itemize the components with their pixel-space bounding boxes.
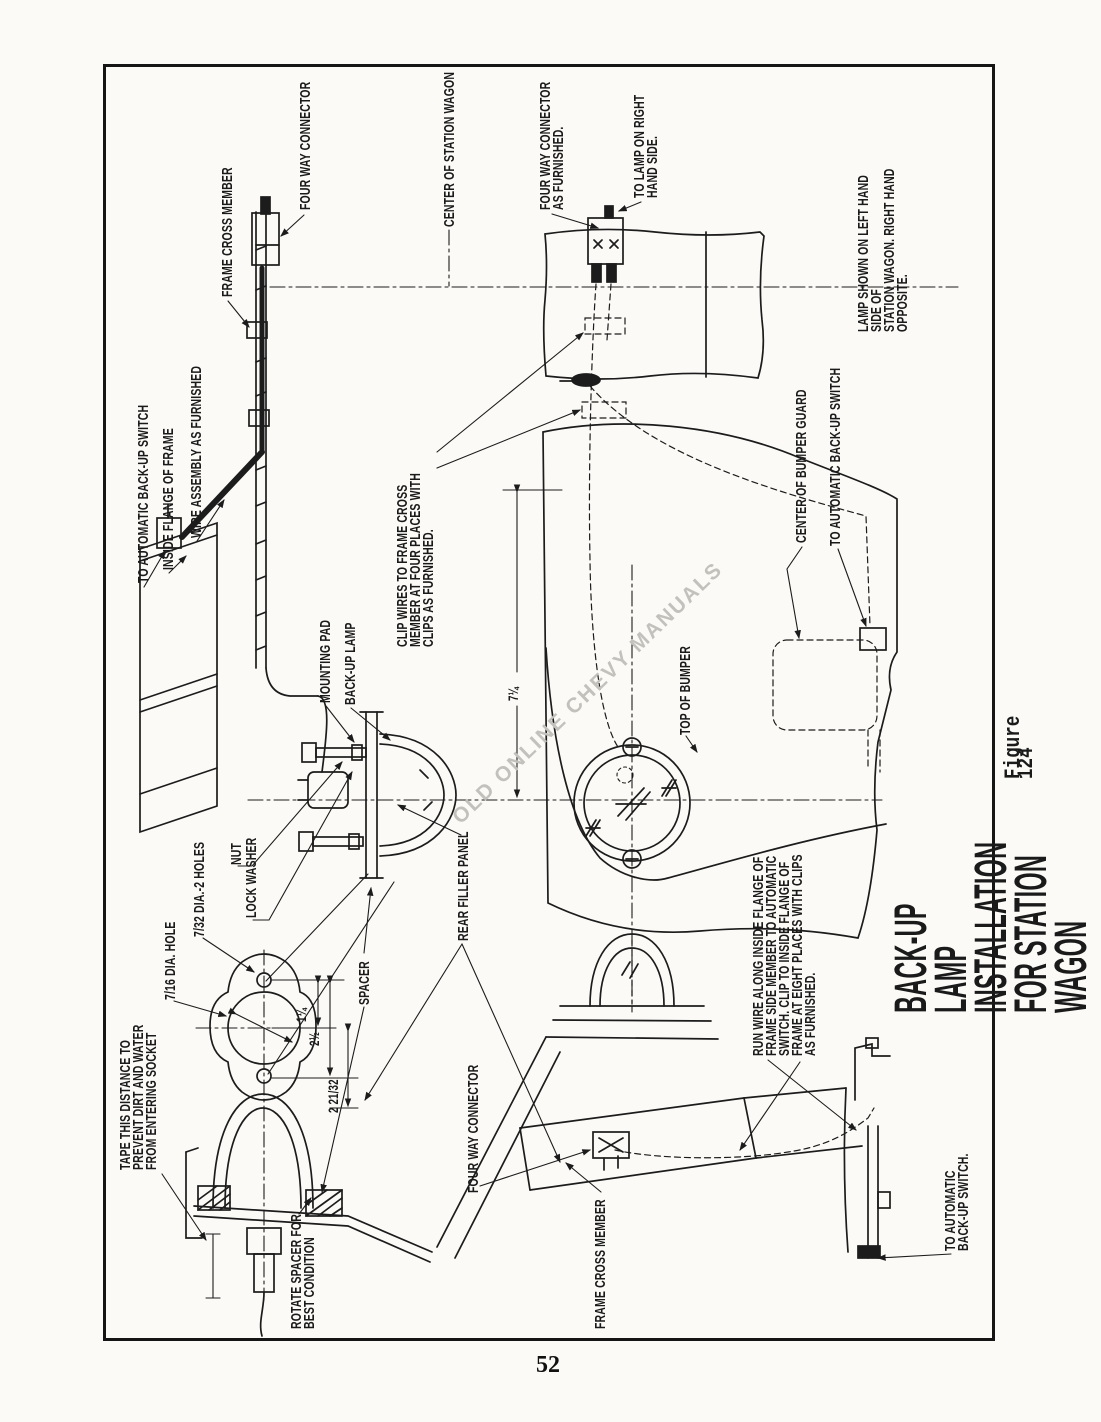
label-dia-2-holes: 7/32 DIA.-2 HOLES — [193, 842, 206, 937]
label-to-lamp-on-right: TO LAMP ON RIGHT HAND SIDE. — [633, 95, 659, 198]
label-center-of-station-wagon: CENTER OF STATION WAGON — [443, 72, 456, 227]
label-rear-filler-panel: REAR FILLER PANEL — [457, 831, 470, 941]
label-nut: NUT — [230, 843, 243, 865]
label-center-of-bumper-guard: CENTER OF BUMPER GUARD — [795, 389, 808, 543]
label-four-way-connector-as-furnished: FOUR WAY CONNECTOR AS FURNISHED. — [539, 82, 565, 210]
dimension-7-1-4: 7¼ — [507, 687, 520, 701]
label-lock-washer: LOCK WASHER — [245, 838, 258, 918]
label-clip-wires-note: CLIP WIRES TO FRAME CROSS MEMBER AT FOUR… — [396, 473, 435, 647]
page-number: 52 — [536, 1352, 560, 1379]
frame-plan-view — [437, 934, 890, 1258]
label-dia-hole: 7/16 DIA. HOLE — [164, 922, 177, 1000]
label-back-up-lamp: BACK-UP LAMP — [344, 622, 357, 705]
dimension-1-1-4: 1¼ — [295, 1008, 308, 1022]
label-mounting-pad: MOUNTING PAD — [319, 620, 332, 703]
label-inside-flange-of-frame: INSIDE FLANGE OF FRAME — [162, 428, 175, 570]
dimension-2-1-2: 2½ — [308, 1032, 321, 1046]
label-spacer: SPACER — [358, 961, 371, 1005]
figure-caption: Figure 124 — [1007, 704, 1033, 779]
label-four-way-connector-bottom: FOUR WAY CONNECTOR — [467, 1065, 480, 1193]
dimension-2-21-32: 2 21/32 — [327, 1079, 340, 1113]
manual-page: FOUR WAY CONNECTOR FRAME CROSS MEMBER CE… — [0, 0, 1101, 1422]
label-to-automatic-backup-switch-mid: TO AUTOMATIC BACK-UP SWITCH — [829, 368, 842, 546]
label-to-automatic-backup-switch-bottom: TO AUTOMATIC BACK-UP SWITCH. — [944, 1141, 970, 1251]
figure-title: BACK-UP LAMP INSTALLATION FOR STATION WA… — [891, 842, 1091, 1013]
label-frame-cross-member-bottom: FRAME CROSS MEMBER — [594, 1199, 607, 1329]
label-frame-cross-member-top: FRAME CROSS MEMBER — [221, 167, 234, 297]
diagram-line-art — [0, 0, 1101, 1422]
label-rotate-spacer: ROTATE SPACER FOR BEST CONDITION — [290, 1214, 316, 1329]
label-lamp-shown-note: LAMP SHOWN ON LEFT HAND SIDE OF STATION … — [857, 161, 909, 332]
label-top-of-bumper: TOP OF BUMPER — [679, 646, 692, 735]
label-wire-assembly: WIRE ASSEMBLY AS FURNISHED — [190, 366, 203, 538]
label-four-way-connector-top: FOUR WAY CONNECTOR — [299, 82, 312, 210]
label-run-wire-note: RUN WIRE ALONG INSIDE FLANGE OF FRAME SI… — [752, 854, 817, 1056]
label-tape-note: TAPE THIS DISTANCE TO PREVENT DIRT AND W… — [119, 1025, 158, 1170]
label-to-automatic-backup-switch-left: TO AUTOMATIC BACK-UP SWITCH — [137, 405, 150, 583]
